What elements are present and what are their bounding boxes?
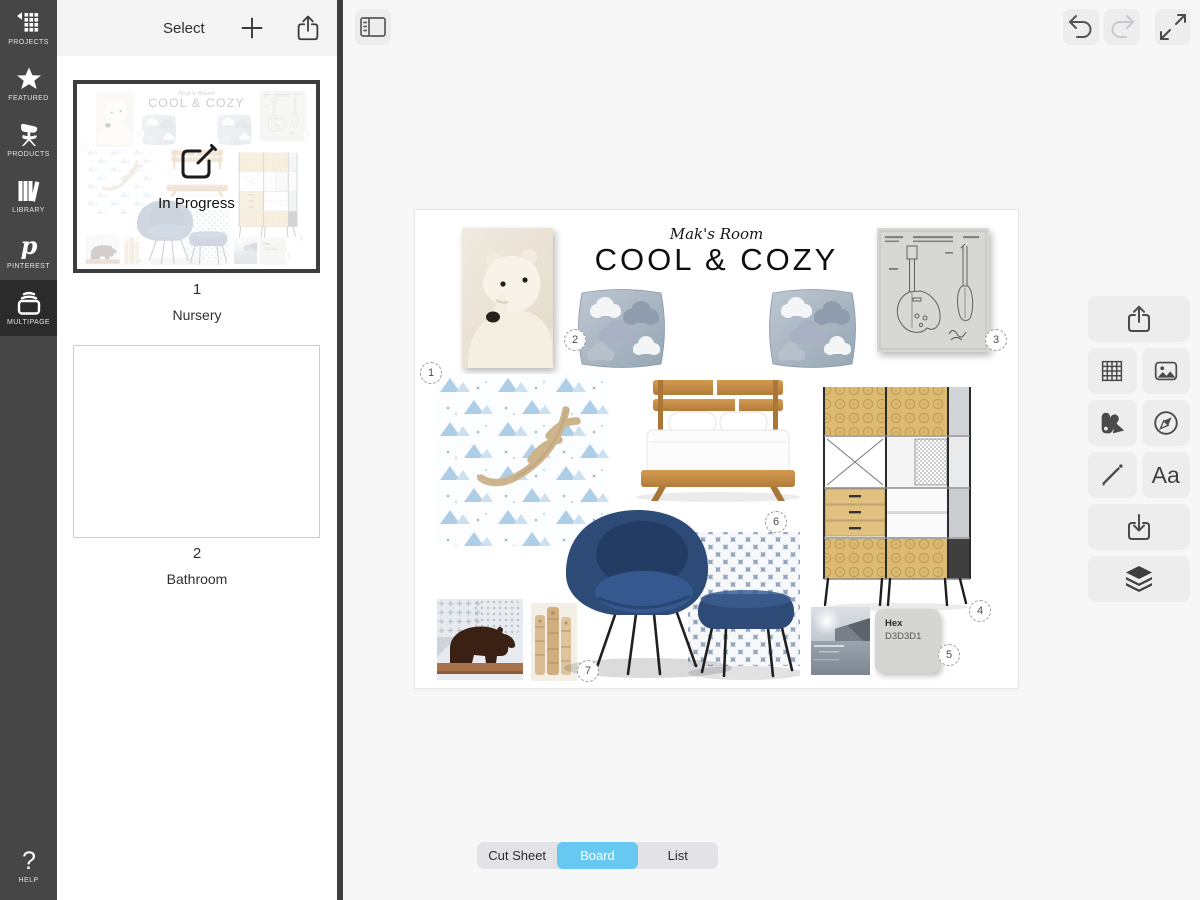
- page-status: In Progress: [158, 195, 235, 212]
- panel-share-button[interactable]: [293, 13, 323, 48]
- plus-icon: [240, 16, 264, 40]
- page-name: Nursery: [57, 307, 337, 323]
- layers-button[interactable]: [1088, 556, 1190, 602]
- undo-button[interactable]: [1063, 9, 1099, 45]
- polar-bear-photo: [462, 228, 553, 368]
- hex-color-swatch: Hex D3D3D1: [875, 609, 940, 673]
- app-window: PROJECTS FEATURED PRODUCTS LIBRARY p PIN…: [0, 0, 1200, 900]
- text-tool-glyph: Aa: [1152, 462, 1180, 489]
- item-badge-5: 5: [938, 644, 960, 666]
- projects-grid-icon: [16, 10, 42, 36]
- share-icon: [1123, 303, 1155, 335]
- share-icon: [293, 13, 323, 43]
- draw-tool-button[interactable]: [1088, 452, 1137, 498]
- fullscreen-button[interactable]: [1155, 9, 1191, 45]
- sidebar-item-library[interactable]: LIBRARY: [0, 168, 57, 224]
- sidebar-label: MULTIPAGE: [7, 319, 50, 326]
- cloud-pillow-left: [575, 283, 668, 374]
- eames-storage-unit: [819, 383, 976, 612]
- svg-text:p: p: [20, 234, 37, 260]
- star-icon: [16, 66, 42, 92]
- mood-board[interactable]: Mak's Room COOL & COZY: [415, 210, 1018, 688]
- panel-divider: [337, 0, 343, 900]
- image-icon: [1151, 356, 1181, 386]
- item-badge-6: 6: [765, 511, 787, 533]
- right-toolbar: Aa: [1088, 296, 1190, 608]
- svg-text:?: ?: [22, 848, 36, 874]
- add-page-button[interactable]: [240, 16, 264, 45]
- page-number: 2: [57, 545, 337, 562]
- item-badge-2: 2: [564, 329, 586, 351]
- swatch-value: D3D3D1: [885, 631, 940, 642]
- toggle-sidebar-button[interactable]: [355, 9, 391, 45]
- left-rail: PROJECTS FEATURED PRODUCTS LIBRARY p PIN…: [0, 0, 57, 900]
- page-thumbnail-nursery[interactable]: Mak's Room COOL & COZY: [73, 80, 320, 273]
- share-button[interactable]: [1088, 296, 1190, 342]
- books-icon: [16, 178, 42, 204]
- chair-icon: [16, 122, 42, 148]
- sidebar-label: LIBRARY: [12, 207, 45, 214]
- segment-board[interactable]: Board: [557, 842, 637, 869]
- item-badge-3: 3: [985, 329, 1007, 351]
- edit-icon: [175, 142, 219, 186]
- cloud-pillow-right: [765, 283, 860, 374]
- bear-sculpture-photo: [437, 599, 523, 680]
- multipage-icon: [15, 290, 43, 316]
- item-badge-1: 1: [420, 362, 442, 384]
- sidebar-item-featured[interactable]: FEATURED: [0, 56, 57, 112]
- layers-icon: [1123, 563, 1155, 595]
- segment-list[interactable]: List: [638, 842, 718, 869]
- sidebar-label: FEATURED: [8, 95, 48, 102]
- materials-tool-button[interactable]: [1088, 400, 1137, 446]
- pen-icon: [1097, 460, 1127, 490]
- download-icon: [1123, 511, 1155, 543]
- redo-button[interactable]: [1104, 9, 1140, 45]
- undo-icon: [1065, 11, 1097, 43]
- wood-platform-bed: [625, 378, 811, 502]
- sidebar-label: PINTEREST: [7, 263, 50, 270]
- page-thumbnail-bathroom[interactable]: [73, 345, 320, 538]
- browser-tool-button[interactable]: [1142, 400, 1191, 446]
- expand-icon: [1157, 11, 1189, 43]
- pages-panel: Select Mak's Room COOL & COZY: [57, 0, 337, 900]
- text-tool-button[interactable]: Aa: [1142, 452, 1191, 498]
- sidebar-item-multipage[interactable]: MULTIPAGE: [0, 280, 57, 336]
- seascape-photo: [811, 607, 870, 675]
- sidebar-item-help[interactable]: ? HELP: [0, 838, 57, 894]
- main-canvas: Mak's Room COOL & COZY: [343, 0, 1200, 900]
- page-name: Bathroom: [57, 571, 337, 587]
- grid-tool-button[interactable]: [1088, 348, 1137, 394]
- image-tool-button[interactable]: [1142, 348, 1191, 394]
- sidebar-item-products[interactable]: PRODUCTS: [0, 112, 57, 168]
- pages-panel-header: Select: [57, 0, 337, 56]
- save-download-button[interactable]: [1088, 504, 1190, 550]
- sidebar-label: PROJECTS: [8, 39, 49, 46]
- select-button[interactable]: Select: [163, 0, 205, 56]
- swatches-icon: [1097, 408, 1127, 438]
- sidebar-label: PRODUCTS: [7, 151, 49, 158]
- sidebar-item-projects[interactable]: PROJECTS: [0, 0, 57, 56]
- pinterest-icon: p: [16, 234, 42, 260]
- swatch-label: Hex: [885, 618, 940, 629]
- navy-womb-chair-and-ottoman: [550, 500, 800, 682]
- item-badge-4: 4: [969, 600, 991, 622]
- compass-icon: [1151, 408, 1181, 438]
- page-number: 1: [57, 281, 337, 298]
- redo-icon: [1106, 11, 1138, 43]
- guitar-patent-print: [877, 228, 989, 352]
- sidebar-toggle-icon: [357, 11, 389, 43]
- view-switcher: Cut Sheet Board List: [477, 842, 718, 869]
- grid-icon: [1097, 356, 1127, 386]
- segment-cut-sheet[interactable]: Cut Sheet: [477, 842, 557, 869]
- sidebar-label: HELP: [19, 877, 39, 884]
- sidebar-item-pinterest[interactable]: p PINTEREST: [0, 224, 57, 280]
- question-icon: ?: [16, 848, 42, 874]
- in-progress-overlay: In Progress: [77, 84, 316, 269]
- item-badge-7: 7: [577, 660, 599, 682]
